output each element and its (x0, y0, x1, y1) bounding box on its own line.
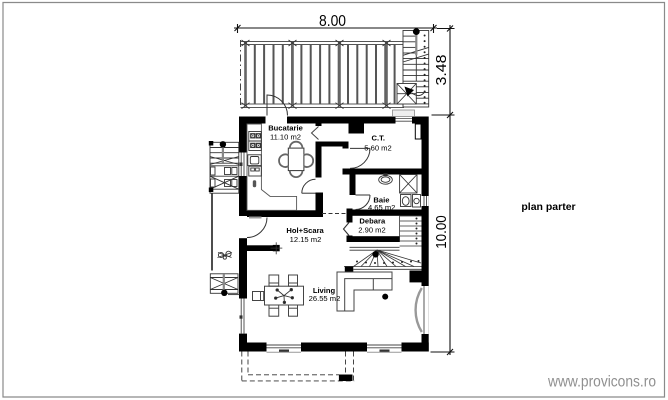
svg-text:4.65 m2: 4.65 m2 (368, 203, 395, 212)
svg-text:www.provicons.ro: www.provicons.ro (547, 374, 656, 391)
svg-text:Bucatarie: Bucatarie (268, 123, 303, 132)
svg-text:2.90 m2: 2.90 m2 (358, 225, 385, 234)
svg-text:plan parter: plan parter (521, 201, 575, 213)
svg-text:26.55 m2: 26.55 m2 (309, 294, 341, 303)
svg-text:5.60 m2: 5.60 m2 (364, 143, 391, 152)
svg-text:11.10 m2: 11.10 m2 (270, 132, 301, 141)
svg-text:8.00: 8.00 (319, 13, 346, 30)
svg-text:C.T.: C.T. (372, 133, 386, 142)
svg-text:10.00: 10.00 (433, 215, 450, 249)
svg-text:12.15 m2: 12.15 m2 (290, 235, 322, 244)
svg-text:3.48: 3.48 (433, 55, 450, 86)
svg-text:Debara: Debara (359, 216, 386, 225)
svg-text:Hol+Scara: Hol+Scara (286, 226, 324, 235)
